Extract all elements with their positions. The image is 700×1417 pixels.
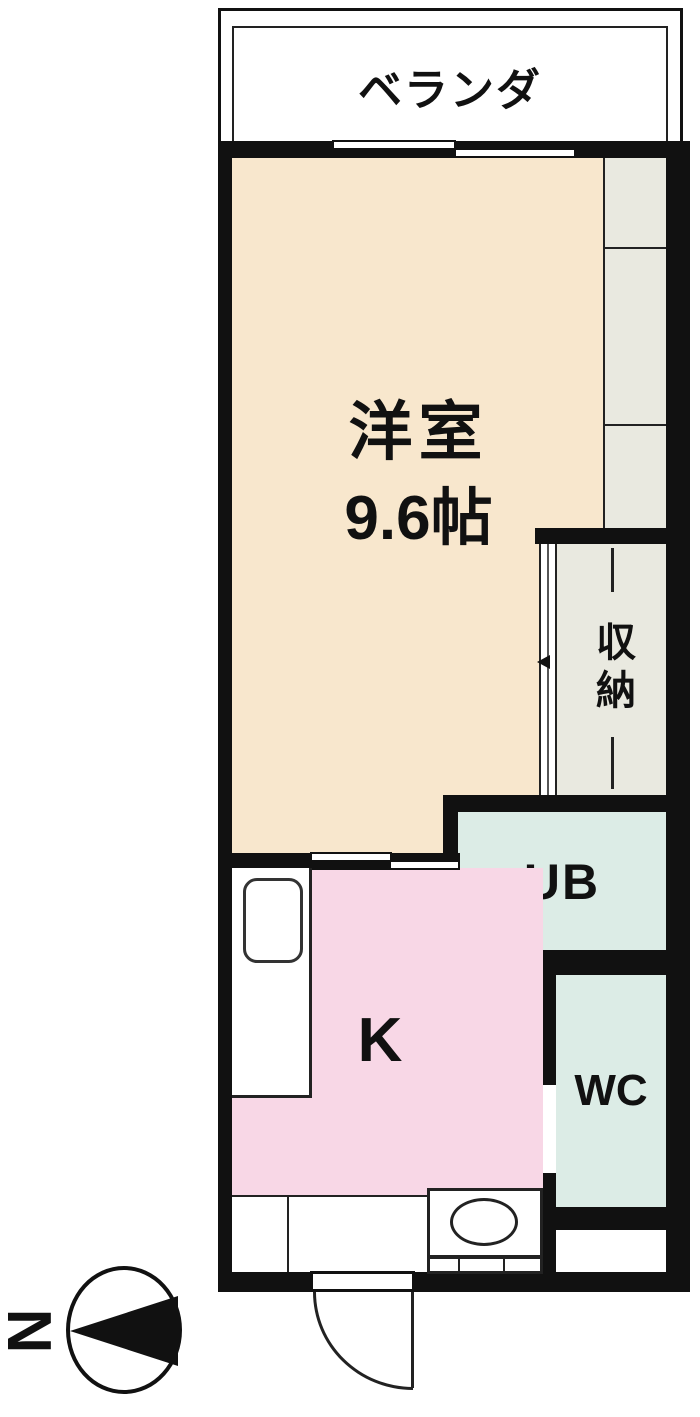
wall-bottom <box>218 1272 690 1292</box>
wall-right <box>666 141 690 1292</box>
storage-centerline <box>611 737 614 789</box>
floor-plan: ベランダ 洋室 9.6帖 収納 UB WC <box>0 0 700 1417</box>
sliding-window-icon <box>332 140 456 150</box>
washbasin-bowl-icon <box>450 1198 518 1246</box>
sliding-door-icon <box>389 860 460 870</box>
kitchen-sink-icon <box>243 878 303 963</box>
toilet-label: WC <box>574 1066 647 1116</box>
pipe-space-niche <box>556 1230 666 1272</box>
entrance-door-leaf <box>310 1271 415 1292</box>
washbasin-base-tick <box>458 1256 460 1274</box>
compass-north-label: N <box>0 1300 60 1362</box>
wall-left <box>218 141 232 1292</box>
side-shelf-strip <box>603 158 666 530</box>
storage-centerline <box>611 548 614 592</box>
storage-label: 収納 <box>583 598 641 740</box>
sliding-window-icon <box>454 148 576 158</box>
sliding-door-icon <box>310 852 392 862</box>
shelf-divider <box>603 424 666 426</box>
toilet-room: WC <box>556 975 666 1207</box>
balcony-inner-area: ベランダ <box>232 26 668 145</box>
entrance-door-swing-arc-icon <box>313 1292 413 1390</box>
washbasin-base <box>427 1256 543 1274</box>
balcony-label: ベランダ <box>358 54 542 118</box>
wall-wc-bottom <box>540 1207 690 1230</box>
western-room-name: 洋室 <box>232 388 605 476</box>
storage-door-line <box>547 544 549 797</box>
kitchen-label: K <box>338 1005 422 1076</box>
shelf-divider <box>603 247 666 249</box>
washbasin-base-tick <box>503 1256 505 1274</box>
wall-storage-top <box>535 528 690 544</box>
entrance-step-line <box>287 1195 289 1272</box>
wall-ub-top <box>443 795 690 812</box>
